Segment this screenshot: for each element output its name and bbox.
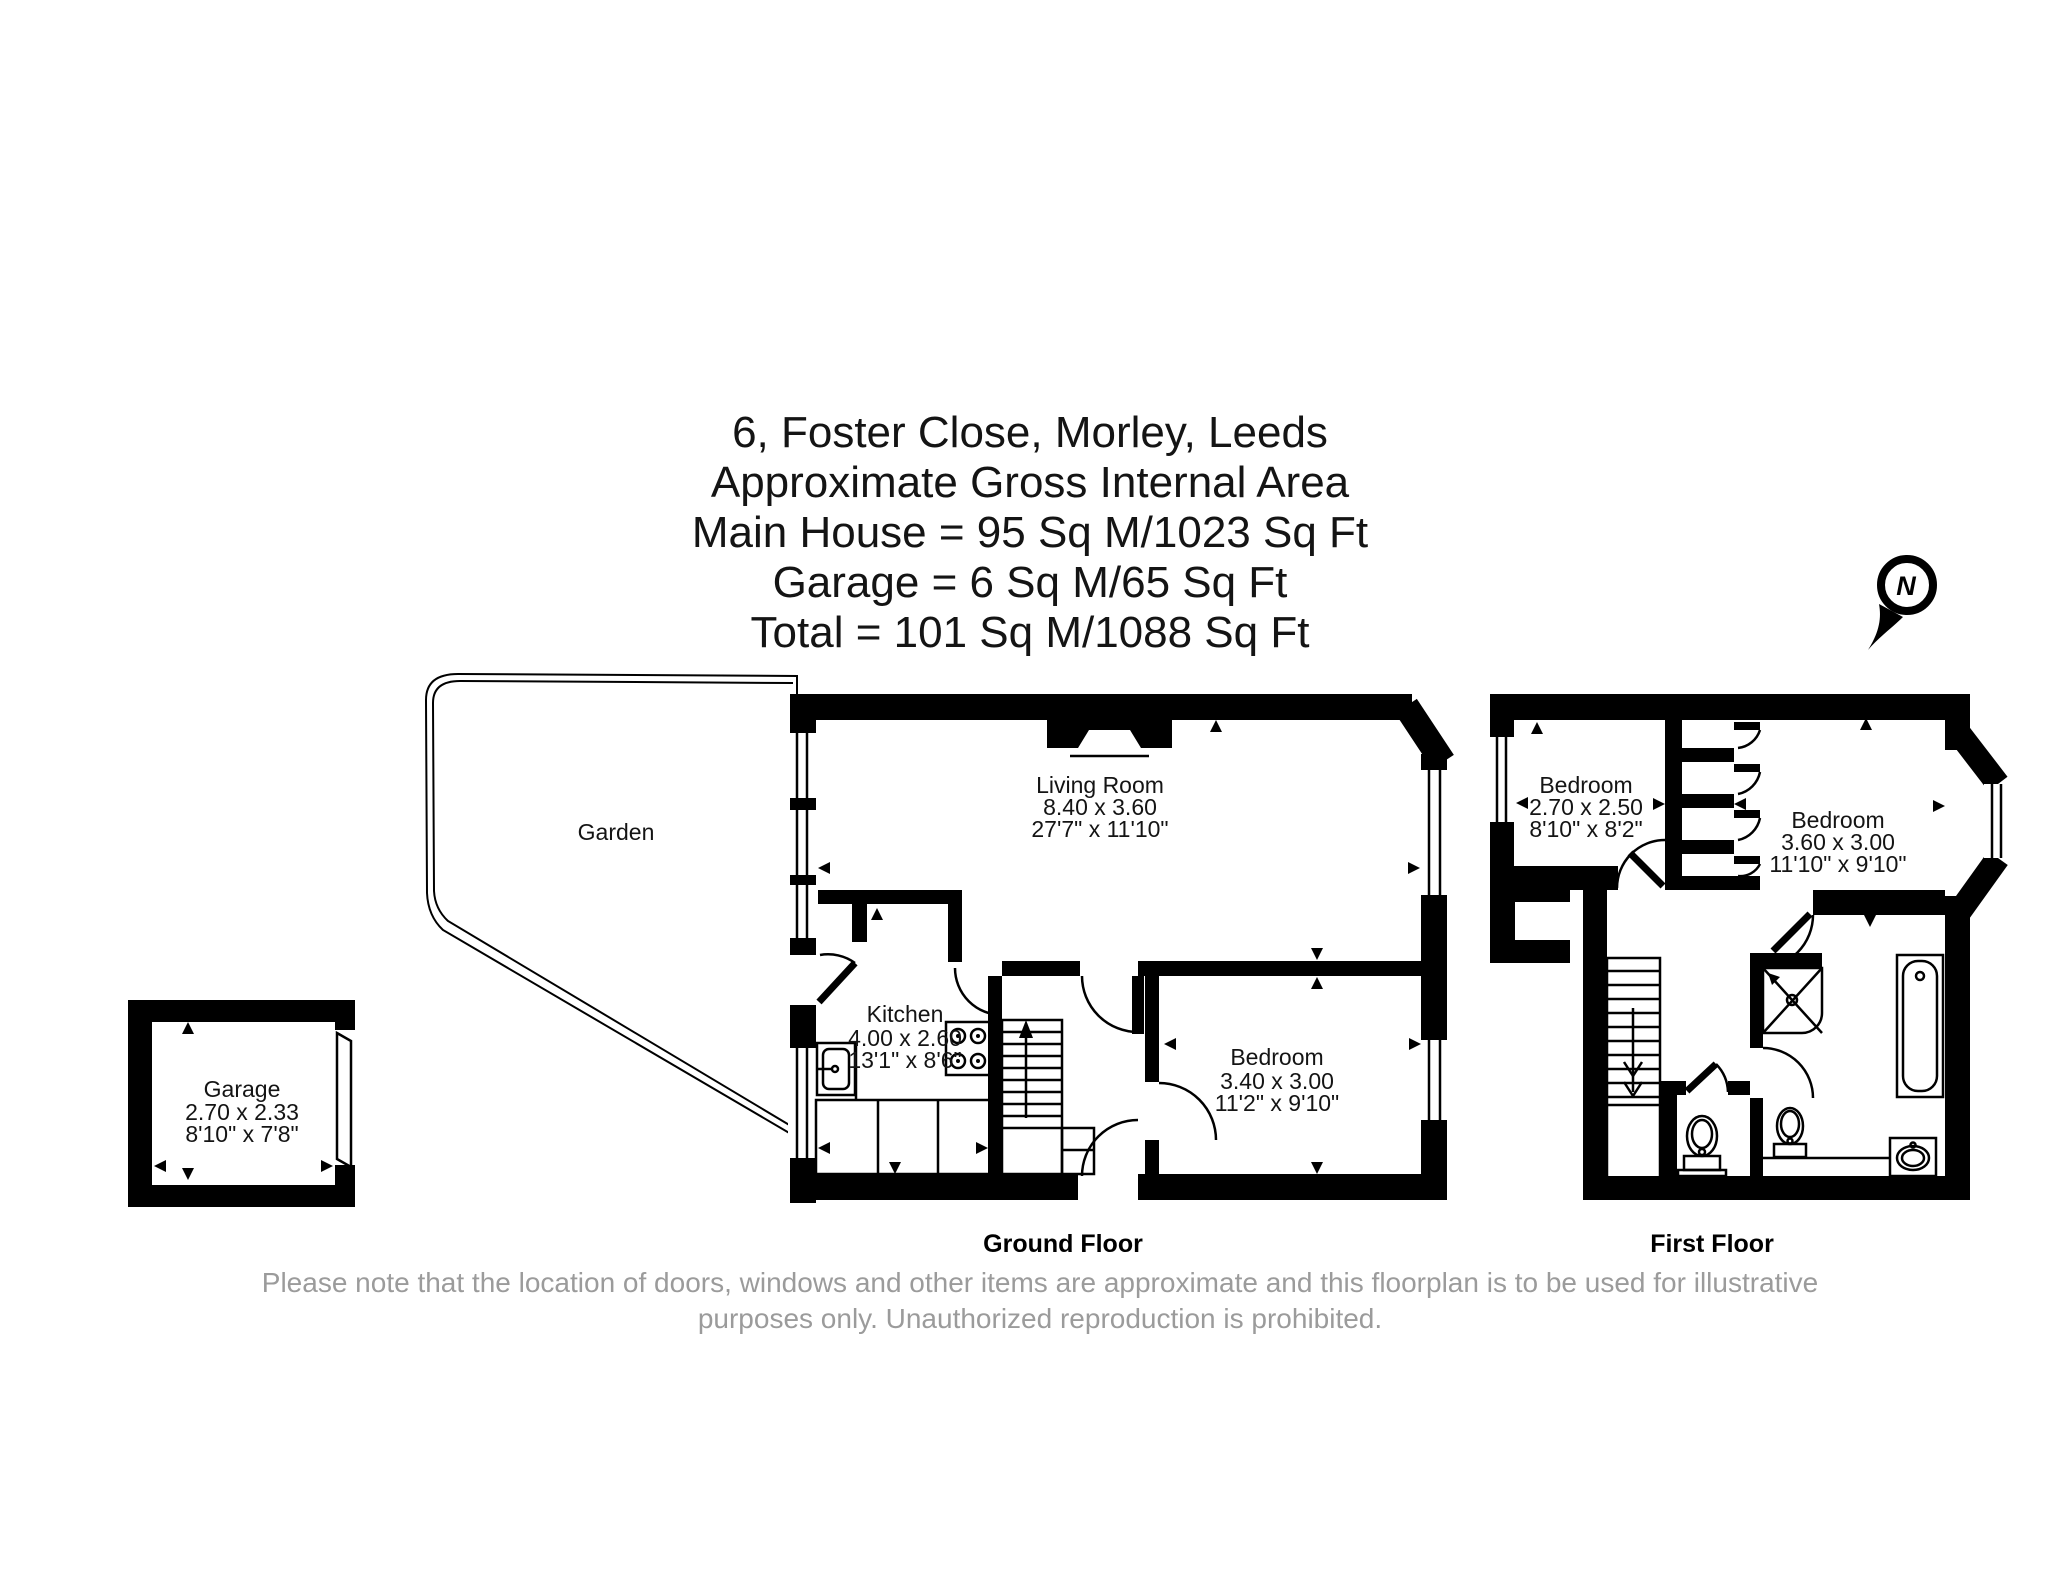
living-room-dims-imperial: 27'7" x 11'10": [1031, 816, 1168, 842]
ground-floor-plan: Living Room 8.40 x 3.60 27'7" x 11'10" K…: [788, 694, 1449, 1203]
garage-plan: Garage 2.70 x 2.33 8'10" x 7'8": [128, 1000, 357, 1207]
wall: [852, 904, 867, 942]
wall: [1145, 1140, 1159, 1174]
window: [1419, 770, 1449, 895]
wall: [1138, 961, 1421, 976]
closet-recess: [1515, 902, 1570, 940]
floorplan-svg: 6, Foster Close, Morley, Leeds Approxima…: [0, 0, 2048, 1583]
bedroom-ground-label: Bedroom: [1230, 1044, 1323, 1070]
wall: [1813, 890, 1945, 915]
measurement-arrow-icon: [976, 1142, 988, 1154]
window: [788, 733, 818, 798]
wall: [1682, 876, 1760, 890]
garden-boundary-inner: [433, 681, 793, 1126]
wall: [1945, 896, 1970, 1200]
wall: [1665, 694, 1682, 890]
floor-labels: Ground Floor First Floor: [983, 1230, 1774, 1258]
garage-door-opening: [331, 1030, 357, 1165]
measurement-arrow-icon: [1311, 1162, 1323, 1174]
stairs-direction-arrow: [1019, 1020, 1033, 1038]
total-area: Total = 101 Sq M/1088 Sq Ft: [751, 608, 1310, 657]
measurement-arrow-icon: [1516, 797, 1528, 809]
wall: [1660, 1081, 1686, 1095]
toilet-icon: [1774, 1108, 1806, 1157]
compass-north-label: N: [1896, 571, 1916, 601]
door-arc: [1716, 1064, 1728, 1092]
window: [1419, 1040, 1449, 1120]
measurement-arrow-icon: [1164, 1038, 1176, 1050]
measurement-arrow-icon: [818, 862, 830, 874]
bedroom-first-large-dims-imperial: 11'10" x 9'10": [1769, 851, 1906, 877]
disclaimer: Please note that the location of doors, …: [262, 1267, 1818, 1334]
area-heading: Approximate Gross Internal Area: [711, 458, 1350, 507]
main-house-area: Main House = 95 Sq M/1023 Sq Ft: [692, 508, 1368, 557]
garden-door-opening: [788, 955, 818, 1005]
window: [788, 885, 818, 938]
measurement-arrow-icon: [1864, 915, 1876, 927]
wall: [1583, 1176, 1970, 1200]
garage-area: Garage = 6 Sq M/65 Sq Ft: [773, 558, 1288, 607]
measurement-arrow-icon: [1408, 862, 1420, 874]
measurement-arrow-icon: [1210, 720, 1222, 732]
stairs-up: [1002, 1020, 1094, 1174]
wall: [1002, 961, 1080, 976]
measurement-arrow-icon: [1734, 798, 1746, 810]
floorplan-page: 6, Foster Close, Morley, Leeds Approxima…: [0, 0, 2048, 1583]
garden-door-leaf: [819, 963, 855, 1002]
bedroom-first-small-dims-imperial: 8'10" x 8'2": [1529, 816, 1642, 842]
garden-label: Garden: [578, 819, 655, 845]
basin-icon: [1890, 1138, 1936, 1176]
measurement-arrow-icon: [1311, 948, 1323, 960]
first-floor-label: First Floor: [1650, 1230, 1774, 1258]
bath-icon: [1897, 955, 1943, 1097]
first-floor-plan: Bedroom 2.70 x 2.50 8'10" x 8'2" Bedroom…: [1488, 694, 2010, 1200]
door-arc: [1763, 1048, 1813, 1098]
disclaimer-line-1: Please note that the location of doors, …: [262, 1267, 1818, 1298]
cupboard-divider: [1682, 840, 1734, 854]
wall: [816, 890, 962, 904]
garden-outline: Garden: [426, 674, 797, 1134]
kitchen-dims-imperial: 13'1" x 8'6": [848, 1047, 961, 1073]
door-arc: [1159, 1083, 1216, 1140]
stairs-down: [1607, 958, 1660, 1176]
measurement-arrow-icon: [1933, 800, 1945, 812]
garden-boundary-outer: [426, 674, 797, 1134]
measurement-arrow-icon: [818, 1142, 830, 1154]
wall: [1406, 706, 1443, 762]
cupboard-divider: [1682, 748, 1734, 762]
toilet-icon: [1678, 1116, 1726, 1176]
shower-icon: [1763, 968, 1822, 1033]
wall: [1490, 694, 1970, 720]
measurement-arrow-icon: [871, 908, 883, 920]
measurement-arrow-icon: [889, 1162, 901, 1174]
wall: [1750, 1098, 1763, 1180]
ground-floor-label: Ground Floor: [983, 1230, 1143, 1258]
door-arc: [1082, 976, 1138, 1032]
window: [1984, 784, 2010, 858]
front-door-opening: [1078, 1172, 1138, 1202]
cupboard-divider: [1682, 794, 1734, 808]
wall: [790, 694, 1412, 720]
cupboard-doors: [1734, 722, 1760, 876]
title-block: 6, Foster Close, Morley, Leeds Approxima…: [692, 408, 1368, 657]
address-line: 6, Foster Close, Morley, Leeds: [732, 408, 1328, 457]
disclaimer-line-2: purposes only. Unauthorized reproduction…: [698, 1303, 1382, 1334]
window: [788, 1048, 818, 1158]
wall: [1955, 728, 1998, 784]
window: [1488, 737, 1516, 822]
door-leaf: [1132, 976, 1144, 1034]
measurement-arrow-icon: [1531, 722, 1543, 734]
wall: [948, 904, 962, 962]
garage-dims-imperial: 8'10" x 7'8": [185, 1121, 298, 1147]
wall: [1660, 1081, 1677, 1180]
door-leaf: [1630, 853, 1663, 886]
measurement-arrow-icon: [1311, 977, 1323, 989]
wall: [1728, 1081, 1750, 1095]
measurement-arrow-icon: [1653, 798, 1665, 810]
door-leaf: [1687, 1064, 1716, 1091]
wall: [1583, 890, 1607, 1200]
bedroom-ground-dims-imperial: 11'2" x 9'10": [1215, 1090, 1339, 1116]
compass-north-icon: N: [1868, 559, 1933, 650]
kitchen-label: Kitchen: [867, 1001, 944, 1027]
door-arc: [820, 954, 855, 963]
fireplace-recess: [1078, 730, 1141, 748]
window: [788, 810, 818, 875]
wall: [1145, 976, 1159, 1082]
